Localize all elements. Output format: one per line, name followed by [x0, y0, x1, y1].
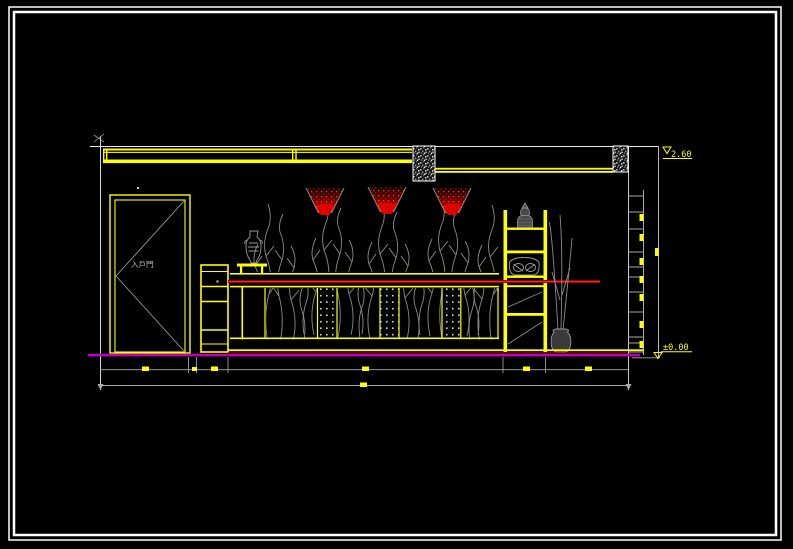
snap-point-dot — [137, 187, 139, 189]
ceiling-molding-right — [435, 168, 613, 173]
perforated-panel — [381, 288, 399, 338]
snap-point-dot — [217, 281, 219, 283]
perforated-panel — [318, 288, 337, 338]
ceiling-hatch-box-center — [413, 146, 435, 181]
counter-red-accent-line — [228, 280, 600, 283]
dimension-arrow — [626, 384, 632, 390]
decorative-vase — [245, 231, 263, 263]
drawing-canvas[interactable]: 入戶門 — [0, 0, 793, 549]
dimension-text-marks-row1 — [142, 367, 592, 372]
cad-application-window: 入戶門 — [0, 0, 793, 549]
spotlight-cone — [433, 188, 471, 215]
entry-door: 入戶門 — [108, 187, 192, 354]
dimension-text-marks-row2 — [360, 383, 367, 388]
perforated-panel — [443, 288, 461, 338]
dimension-text-marks-vertical — [640, 214, 659, 348]
bottom-dimension-chains — [98, 357, 632, 390]
spotlight-cone — [306, 188, 344, 215]
dimension-arrow — [98, 384, 104, 390]
floor-finish-line — [88, 354, 640, 357]
door-label: 入戶門 — [131, 259, 154, 269]
display-shelf-unit — [499, 200, 550, 353]
side-cabinet — [199, 263, 230, 353]
elevation-marker-top: 2.60 — [663, 147, 692, 160]
ceiling-molding-left — [103, 149, 412, 164]
spotlight-cone — [368, 187, 406, 214]
corner-tick-mark — [94, 134, 104, 142]
ceiling-hatch-box-right — [613, 146, 628, 172]
spotlights — [306, 187, 471, 215]
